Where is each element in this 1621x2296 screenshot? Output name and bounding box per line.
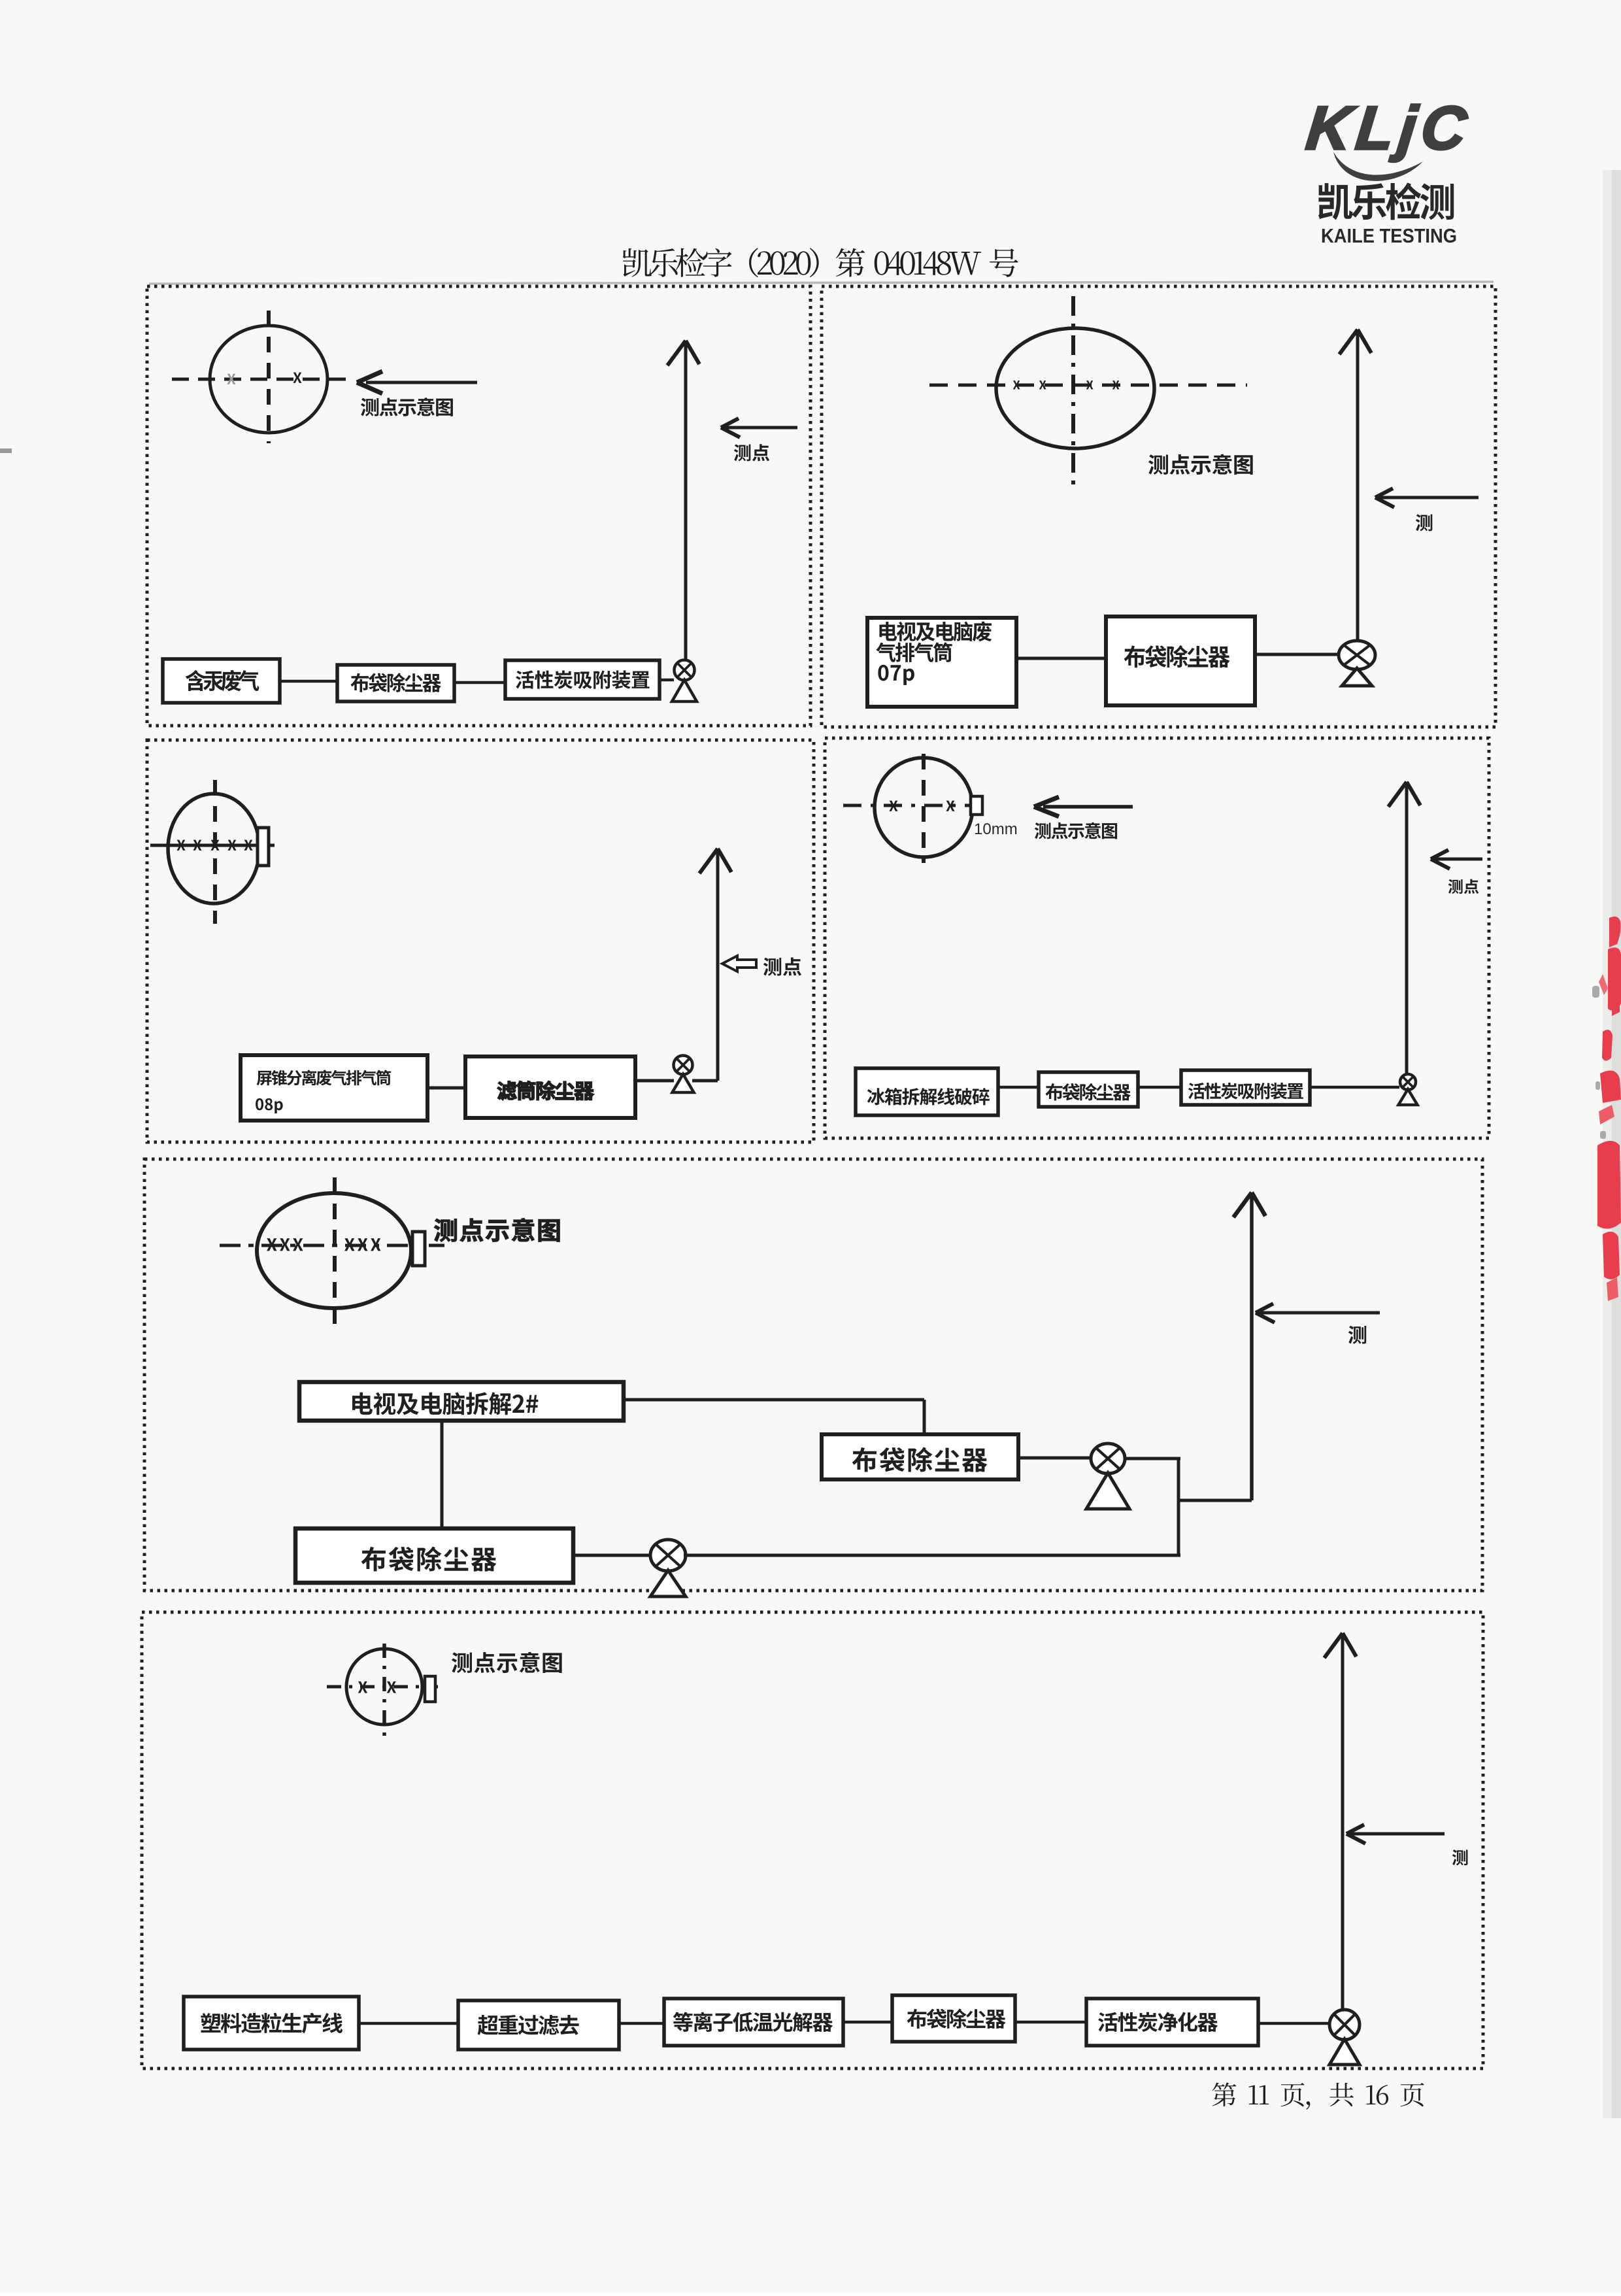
svg-text:KLjC: KLjC [1303, 93, 1475, 162]
svg-text:10mm: 10mm [974, 820, 1018, 838]
svg-text:KAILE TESTING: KAILE TESTING [1321, 224, 1457, 247]
